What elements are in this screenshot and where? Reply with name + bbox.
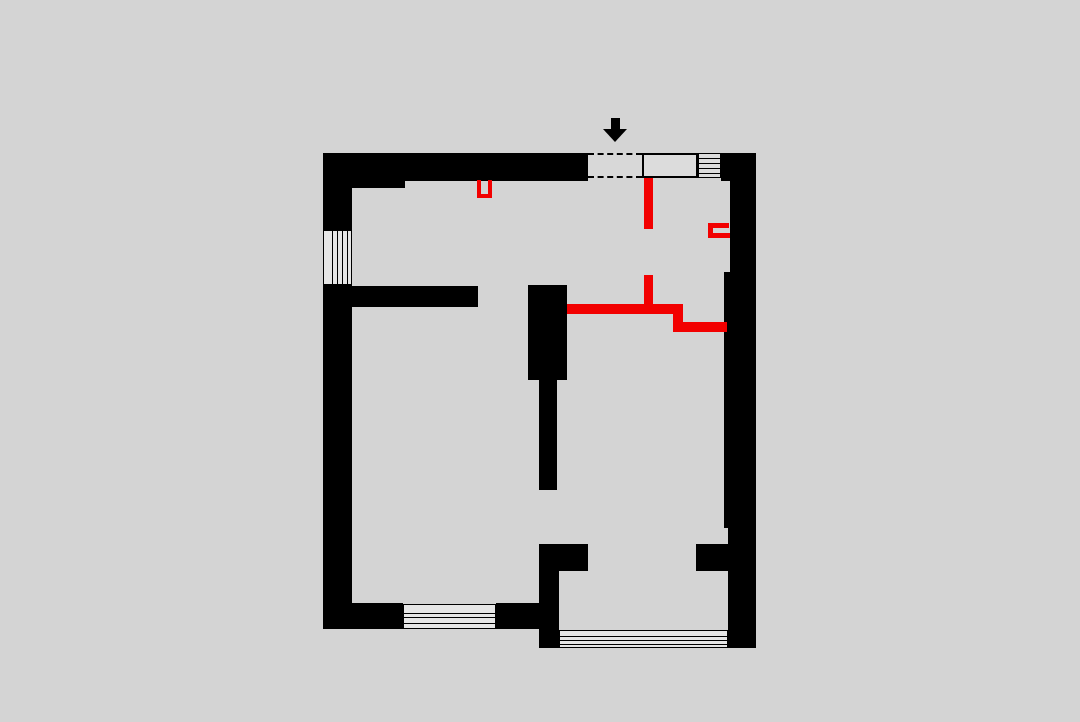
window-bottom-left-mullion-3: [404, 623, 495, 624]
bottom-wall-left-a: [352, 603, 403, 629]
new-wall-horizontal-main: [567, 304, 683, 314]
entry-hatch: [698, 153, 721, 178]
right-stub-wall: [696, 544, 728, 571]
top-wall: [405, 153, 588, 181]
window-bottom-right-mullion-3: [560, 644, 727, 645]
right-wall-upper: [730, 181, 756, 272]
top-right-corner-wall: [721, 153, 756, 181]
entry-cabinet: [642, 153, 698, 178]
center-column-upper: [528, 285, 567, 380]
window-left-mullion-1: [332, 230, 333, 285]
new-wall-vertical-upper: [644, 178, 653, 229]
center-stub-wall: [539, 544, 588, 571]
window-bottom-right: [559, 630, 728, 648]
entry-arrow-head: [603, 129, 627, 142]
window-bottom-right-mullion-2: [560, 640, 727, 641]
new-wall-step: [673, 314, 683, 322]
window-left-mullion-2: [337, 230, 338, 285]
entry-arrow-shaft: [611, 118, 620, 129]
window-bottom-right-mullion-1: [560, 636, 727, 637]
entry-hatch-line-2: [698, 163, 721, 164]
new-wall-bracket-bottom: [708, 233, 730, 238]
left-wall-upper: [323, 153, 352, 230]
window-left-mullion-4: [347, 230, 348, 285]
entry-hatch-line-4: [698, 173, 721, 174]
entry-hatch-line-3: [698, 168, 721, 169]
right-wall-mid: [724, 272, 756, 528]
bottom-wall-left-b: [496, 603, 539, 629]
window-bottom-left-mullion-1: [404, 613, 495, 614]
hallway-wall: [352, 286, 478, 307]
right-wall-lower: [728, 528, 756, 648]
new-wall-vertical-lower: [644, 275, 653, 304]
entry-door-opening: [588, 153, 642, 178]
window-left-mullion-3: [342, 230, 343, 285]
center-column-narrow: [539, 380, 557, 490]
left-wall-lower: [323, 285, 352, 629]
center-column-lower: [539, 571, 559, 648]
window-bottom-left-mullion-2: [404, 617, 495, 618]
entry-hatch-line-1: [698, 158, 721, 159]
floor-plan: [0, 0, 1080, 722]
new-wall-horizontal-lower: [673, 322, 727, 332]
new-wall-u-bottom: [477, 194, 492, 198]
